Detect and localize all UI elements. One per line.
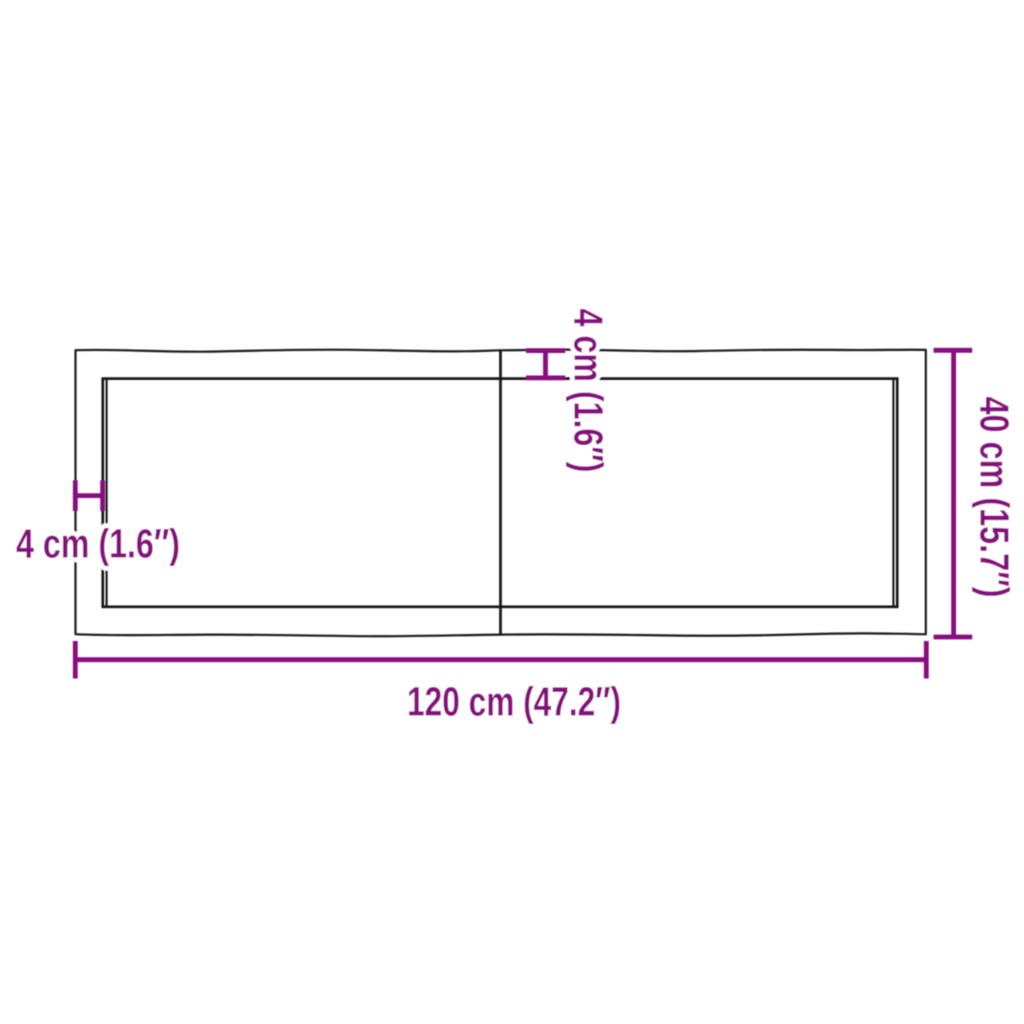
svg-text:120 cm (47.2″): 120 cm (47.2″)	[407, 678, 621, 724]
svg-text:4 cm (1.6″): 4 cm (1.6″)	[16, 520, 180, 566]
svg-text:4 cm (1.6″): 4 cm (1.6″)	[566, 309, 612, 473]
svg-text:40 cm (15.7″): 40 cm (15.7″)	[972, 397, 1018, 598]
